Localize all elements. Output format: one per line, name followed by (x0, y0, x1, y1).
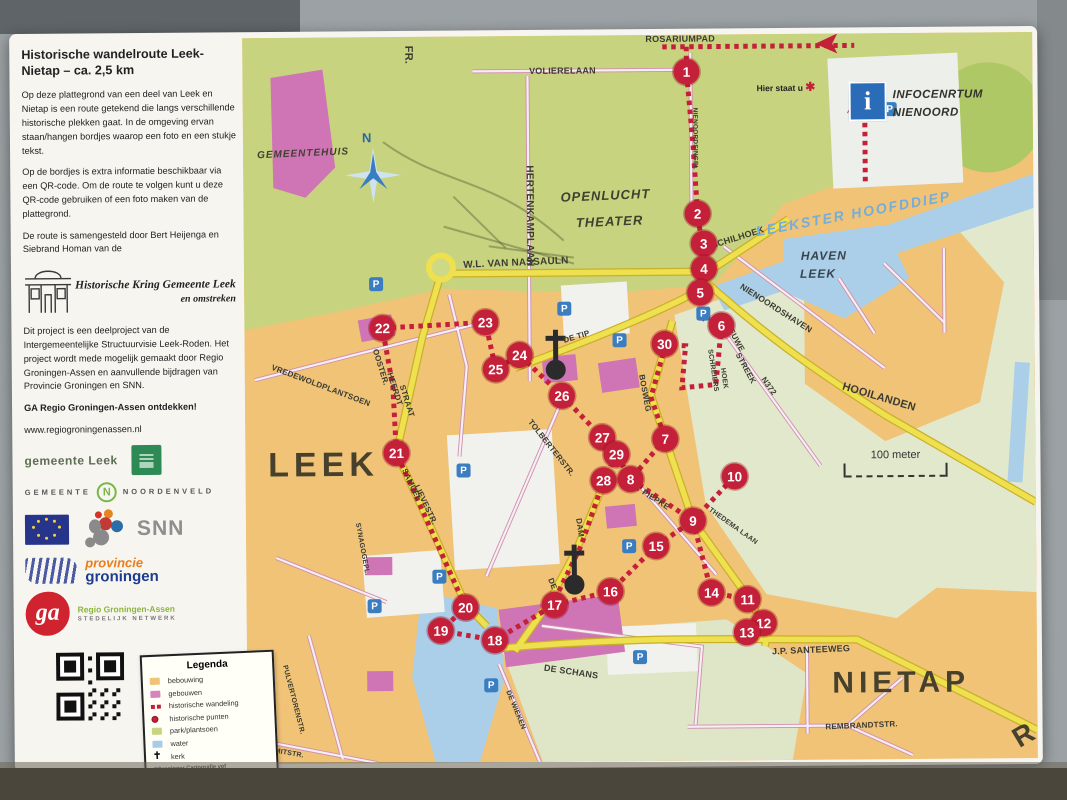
groningen-label: groningen (85, 569, 158, 585)
panel-paragraph-2: Op de bordjes is extra informatie beschi… (22, 165, 237, 222)
legend-swatch-icon (150, 690, 163, 698)
qr-code (56, 652, 125, 721)
map-label: THEATER (576, 212, 644, 230)
panel-website: www.regiogroningenassen.nl (24, 422, 239, 437)
info-centre-icon: i (849, 81, 887, 121)
noordenveld-name: NOORDENVELD (123, 487, 214, 497)
map-label: NIENOORDSINGEL (691, 108, 698, 170)
parking-icon: P (622, 539, 636, 553)
route-point-marker-29: 29 (603, 441, 629, 467)
legend-item: bebouwing (150, 672, 266, 686)
route-point-marker-28: 28 (591, 467, 617, 493)
kring-text: Historische Kring Gemeente Leek en omstr… (75, 278, 236, 307)
legend-swatch-icon (152, 740, 165, 748)
legend-item: gebouwen (150, 685, 266, 699)
parking-icon: P (633, 650, 647, 664)
route-point-marker-21: 21 (383, 440, 409, 466)
legend-item: ✝kerk (153, 747, 269, 762)
kring-line1: Historische Kring Gemeente Leek (75, 278, 236, 294)
gemeente-leek-label: gemeente Leek (24, 453, 117, 468)
ga-mark-icon: ga (25, 591, 69, 635)
map-label: ROSARIUMPAD (645, 34, 715, 45)
route-point-marker-22: 22 (369, 315, 395, 341)
noordenveld-prefix: GEMEENTE (25, 488, 91, 498)
panel-title: Historische wandelroute Leek-Nietap – ca… (21, 46, 236, 79)
route-map: i INFOCENRTUM NIENOORD Hier staat u ✱ 10… (242, 32, 1038, 764)
map-label: LEEK (268, 446, 379, 486)
legend-item-label: gebouwen (168, 687, 202, 697)
noordenveld-logo: GEMEENTE N NOORDENVELD (25, 481, 240, 503)
route-point-marker-19: 19 (428, 618, 454, 644)
map-label: HERTENKAMPLAAN (524, 165, 536, 266)
parking-icon: P (484, 678, 498, 692)
route-point-marker-4: 4 (691, 255, 717, 281)
route-point-marker-6: 6 (708, 312, 734, 338)
snn-label: SNN (137, 517, 185, 541)
legend-dot-icon (151, 715, 164, 723)
map-label: NIETAP (832, 666, 970, 701)
legend-items: bebouwinggebouwenhistorische wandelinghi… (150, 672, 270, 762)
panel-paragraph-1: Op deze plattegrond van een deel van Lee… (22, 88, 238, 159)
route-point-marker-10: 10 (722, 463, 748, 489)
route-point-marker-9: 9 (680, 508, 706, 534)
legend-item-label: water (170, 738, 188, 748)
route-point-marker-30: 30 (651, 331, 677, 357)
legend-item: historische wandeling (151, 697, 267, 711)
information-board: Historische wandelroute Leek-Nietap – ca… (9, 26, 1043, 772)
panel-paragraph-3: De route is samengesteld door Bert Heije… (23, 228, 238, 257)
parking-icon: P (457, 463, 471, 477)
compass-north-label: N (362, 129, 372, 147)
panel-cta: GA Regio Groningen-Assen ontdekken! (24, 400, 239, 415)
infocentrum-label-line2: NIENOORD (893, 107, 959, 120)
legend-item-label: historische punten (169, 711, 229, 723)
historische-kring-logo: Historische Kring Gemeente Leek en omstr… (21, 263, 240, 317)
wall-shadow-top-right (1037, 0, 1067, 300)
legend-swatch-icon (150, 677, 163, 685)
route-point-marker-23: 23 (472, 309, 498, 335)
parking-icon: P (369, 277, 383, 291)
snn-figure-icon (85, 509, 131, 549)
you-are-here-star-icon: ✱ (805, 80, 815, 94)
sponsor-logos: gemeente Leek GEMEENTE N NOORDENVELD (22, 444, 242, 636)
parking-icon: P (368, 599, 382, 613)
route-point-marker-13: 13 (734, 619, 760, 645)
route-point-marker-5: 5 (687, 280, 713, 306)
legend-item-label: kerk (171, 751, 185, 761)
provincie-groningen-logo: provincie groningen (25, 555, 240, 585)
parking-icon: P (432, 570, 446, 584)
route-point-marker-25: 25 (483, 356, 509, 382)
you-are-here-text: Hier staat u (757, 83, 803, 93)
scale-bar (844, 463, 948, 478)
map-label: FR. (402, 46, 414, 64)
map-label: LEEK (800, 267, 836, 281)
parking-icon: P (557, 302, 571, 316)
route-point-marker-7: 7 (652, 426, 678, 452)
legend-church-icon: ✝ (153, 751, 166, 762)
you-are-here-label: Hier staat u ✱ (757, 80, 816, 94)
wall-shadow-top-left (0, 0, 300, 34)
photo-of-information-board: { "panel": { "title": "Historische wande… (0, 0, 1067, 800)
route-point-marker-15: 15 (643, 533, 669, 559)
regio-groningen-assen-logo: ga Regio Groningen-Assen STEDELIJK NETWE… (25, 590, 240, 636)
panel-paragraph-4: Dit project is een deelproject van de In… (23, 323, 239, 394)
kring-gate-icon (21, 265, 75, 317)
legend-item-label: bebouwing (168, 675, 204, 686)
snn-logo: SNN (85, 509, 185, 550)
eu-flag-icon (25, 514, 69, 544)
legend-route-icon (151, 704, 164, 709)
scale-label: 100 meter (843, 449, 947, 462)
gemeente-leek-crest-icon (132, 445, 162, 475)
kring-line2: en omstreken (75, 292, 236, 306)
ga-network-label: STEDELIJK NETWERK (78, 616, 177, 623)
legend-item: park/plantsoen (152, 722, 268, 736)
route-point-marker-11: 11 (734, 586, 760, 612)
route-point-marker-26: 26 (549, 383, 575, 409)
groningen-horse-icon (25, 557, 77, 583)
wooden-ledge (0, 768, 1067, 800)
legend-swatch-icon (152, 727, 165, 735)
gemeente-leek-logo: gemeente Leek (24, 444, 239, 476)
route-point-marker-20: 20 (453, 594, 479, 620)
route-point-marker-3: 3 (691, 230, 717, 256)
legend-item: historische punten (151, 710, 267, 724)
infocentrum-label-line1: INFOCENRTUM (893, 88, 983, 101)
parking-icon: P (612, 333, 626, 347)
legend-title: Legenda (149, 657, 265, 673)
map-scale: 100 meter (843, 449, 947, 478)
noordenveld-n-icon: N (97, 482, 117, 502)
route-point-marker-18: 18 (482, 627, 508, 653)
legend-item: water (152, 735, 268, 749)
route-point-marker-16: 16 (597, 578, 623, 604)
parking-icon: P (696, 307, 710, 321)
route-point-marker-2: 2 (684, 201, 710, 227)
map-label: HAVEN (801, 248, 847, 262)
route-point-marker-1: 1 (673, 59, 699, 85)
legend-item-label: historische wandeling (169, 698, 239, 710)
route-point-marker-17: 17 (542, 592, 568, 618)
legend-item-label: park/plantsoen (170, 724, 218, 735)
route-point-marker-24: 24 (507, 342, 533, 368)
route-point-marker-8: 8 (618, 466, 644, 492)
route-point-marker-14: 14 (698, 579, 724, 605)
eu-snn-logos: SNN (25, 508, 240, 550)
map-label: VOLIERELAAN (529, 65, 596, 76)
ga-region-label: Regio Groningen-Assen (78, 604, 177, 615)
